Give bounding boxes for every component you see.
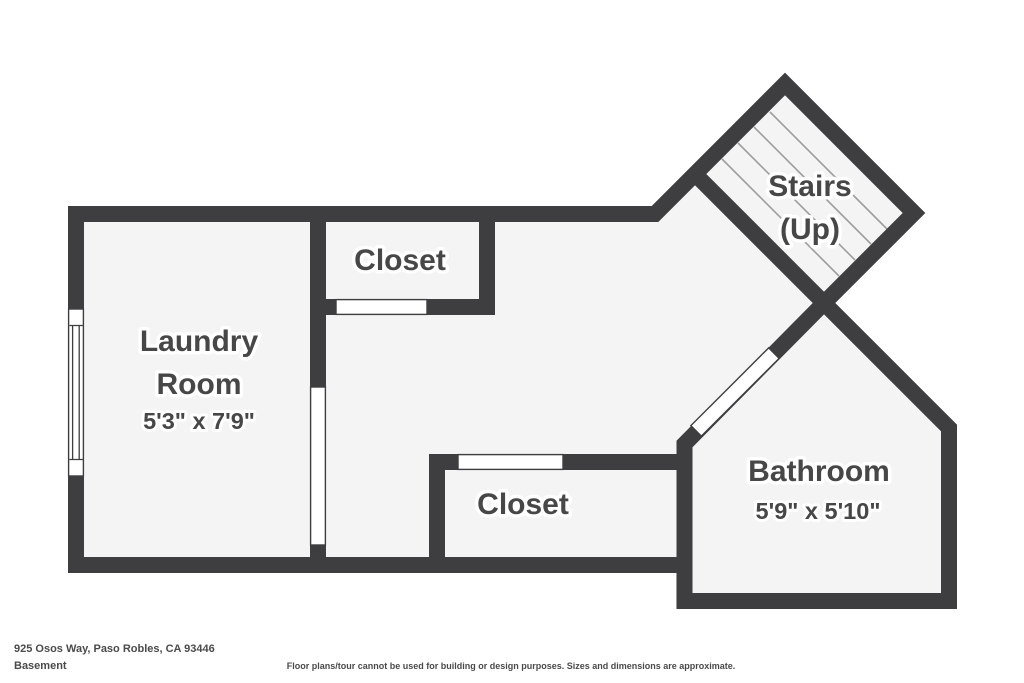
- room-dim-bathroom: 5'9" x 5'10": [756, 498, 881, 524]
- room-label-stairs-line1: Stairs: [768, 170, 851, 203]
- room-label-stairs-line2: (Up): [780, 213, 840, 246]
- address-text: 925 Osos Way, Paso Robles, CA 93446: [14, 643, 215, 655]
- room-label-closet-bottom: Closet: [477, 488, 569, 521]
- level-text: Basement: [14, 660, 67, 672]
- room-label-laundry-line2: Room: [157, 368, 242, 401]
- room-label-closet-top: Closet: [354, 244, 446, 277]
- closet-top-door-opening: [336, 300, 427, 315]
- room-label-bathroom: Bathroom: [748, 455, 890, 488]
- room-dim-laundry: 5'3" x 7'9": [143, 408, 255, 434]
- closet-bottom-door-opening: [458, 455, 563, 470]
- room-label-laundry-line1: Laundry: [140, 325, 259, 358]
- window: [69, 309, 84, 476]
- floor-plan-canvas: Laundry Room 5'3" x 7'9" Closet Closet S…: [0, 0, 1024, 683]
- laundry-door-opening: [311, 387, 326, 545]
- floor-plan-page: Laundry Room 5'3" x 7'9" Closet Closet S…: [0, 0, 1024, 683]
- disclaimer-text: Floor plans/tour cannot be used for buil…: [287, 661, 736, 671]
